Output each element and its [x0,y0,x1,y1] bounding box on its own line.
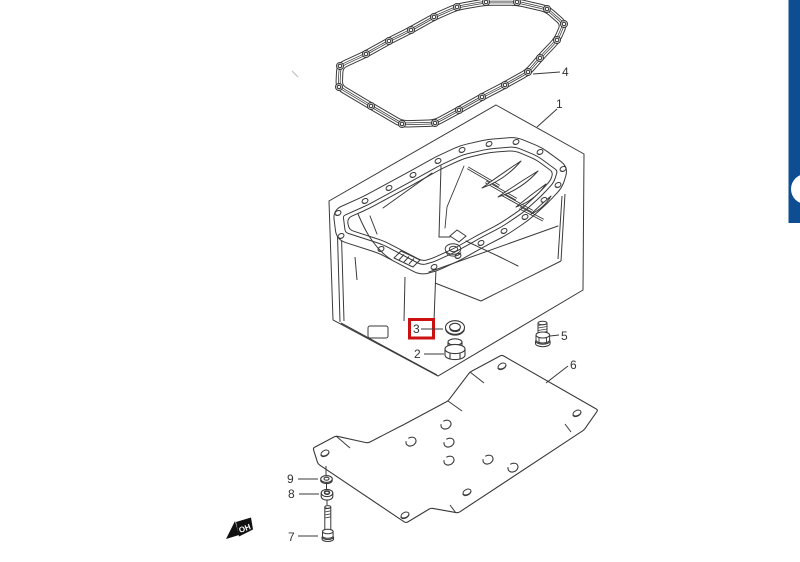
svg-text:3: 3 [413,322,420,336]
svg-text:1: 1 [556,97,563,111]
svg-text:6: 6 [570,358,577,372]
svg-text:7: 7 [288,530,295,544]
svg-text:5: 5 [561,329,568,343]
svg-text:4: 4 [562,65,569,79]
svg-text:8: 8 [288,487,295,501]
svg-text:2: 2 [414,347,421,361]
svg-text:9: 9 [287,472,294,486]
